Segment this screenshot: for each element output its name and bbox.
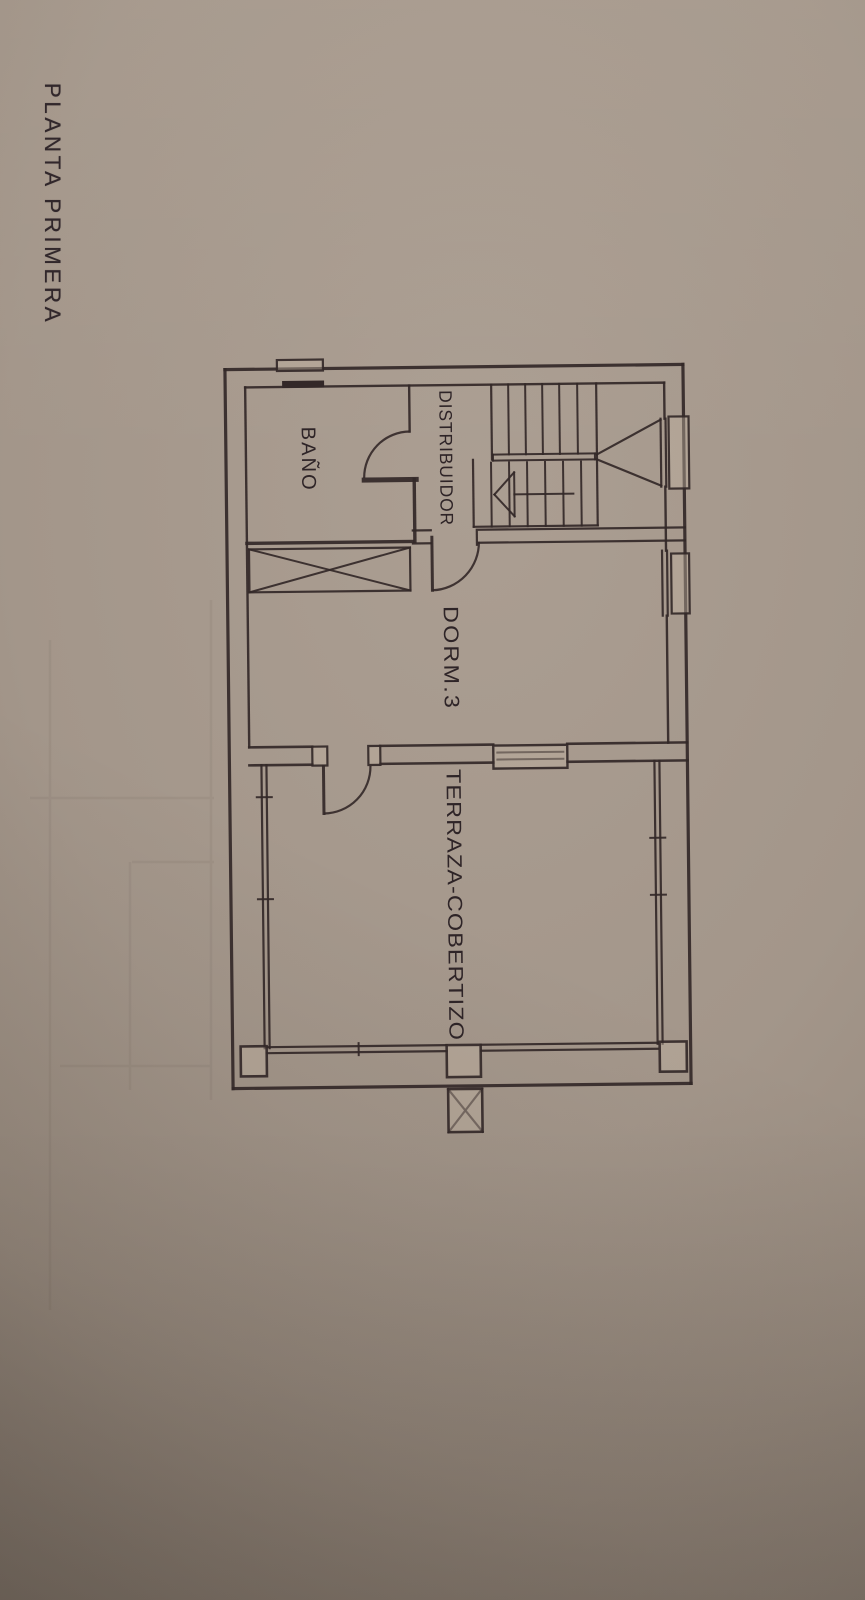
room-label-distribuidor: DISTRIBUIDOR [435, 390, 457, 526]
outer-wall-left [225, 370, 233, 1089]
dorm3-bottom-wall [567, 760, 687, 761]
dorm3-window [667, 551, 668, 616]
dorm3-bottom-wall [380, 763, 493, 764]
terraza-post-right [660, 1041, 687, 1071]
stair-arrow-shaft [514, 494, 573, 495]
terraza-post-center [447, 1045, 481, 1077]
terraza-door-arc [323, 766, 371, 814]
room-label-bano: BAÑO [297, 427, 322, 492]
terraza-wall-left [266, 765, 269, 1048]
dorm3-bottom-wall [567, 742, 687, 743]
terraza-wall-bottom [267, 1045, 447, 1047]
dorm3-bottom-wall [249, 747, 312, 748]
bano-bottom-wall [247, 541, 413, 543]
stair-bottom-wall [479, 527, 685, 529]
terraza-wall-bottom [481, 1049, 658, 1051]
stair-tread [577, 384, 578, 454]
dorm3-door-leaf [432, 537, 433, 590]
stair-left-wall-upper [491, 385, 492, 460]
stair-arrow-head [494, 494, 514, 516]
floor-plan-walls: BAÑODISTRIBUIDORDORM.3TERRAZA-COBERTIZO [225, 355, 697, 1134]
bano-door-stub [364, 479, 416, 480]
bano-right-wall [409, 386, 410, 432]
dorm3-bottom-wall [249, 765, 312, 766]
dorm3-window-sill [671, 553, 690, 613]
room-label-terraza: TERRAZA-COBERTIZO [441, 769, 467, 1041]
terraza-wall-bottom [267, 1051, 447, 1053]
stair-tread [491, 463, 492, 527]
floor-plan-drawing: BAÑODISTRIBUIDORDORM.3TERRAZA-COBERTIZO [0, 0, 865, 1600]
inner-wall-right-c [667, 616, 668, 743]
corridor-left-wall [414, 479, 415, 541]
stair-tread [509, 462, 510, 526]
bano-window-bar [282, 380, 324, 387]
stair-tread [525, 384, 526, 454]
stair-tread [542, 384, 543, 454]
stair-arrow-head [494, 472, 514, 494]
stair-handrail [493, 453, 595, 454]
stair-left-wall-lower [473, 460, 474, 527]
terraza-wall-right [659, 761, 662, 1044]
terraza-door-leaf [323, 767, 324, 814]
paper-bleedthrough [30, 600, 214, 1310]
room-label-dorm3: DORM.3 [439, 606, 463, 710]
stair-landing-splay [597, 459, 661, 487]
top-wall-bump [277, 360, 323, 372]
dorm3-bottom-wall [380, 745, 493, 746]
terraza-door-jamb-right [368, 746, 380, 765]
terraza-wall-right [654, 761, 657, 1044]
stair-window [666, 419, 667, 487]
stair-tread [508, 384, 509, 454]
terraza-wall-left [261, 765, 264, 1048]
stair-handrail [493, 459, 595, 460]
stair-landing-splay [597, 420, 661, 455]
stair-tread [559, 384, 560, 454]
terraza-wall-bottom [481, 1043, 658, 1045]
stair-window-sill [669, 416, 690, 488]
pillar-base [448, 1089, 482, 1132]
stair-tread [581, 462, 582, 526]
dorm3-door-arc [432, 542, 480, 591]
bano-door-arc [364, 432, 411, 479]
stair-window [661, 419, 662, 487]
stair-bottom-wall [479, 540, 685, 542]
terraza-door-jamb-left [312, 746, 327, 765]
scanned-page: PLANTA PRIMERA BAÑODISTRIBUIDORDORM.3TER… [0, 0, 865, 1600]
terraza-window [493, 745, 567, 769]
terraza-post-left [241, 1046, 267, 1076]
dorm3-window [662, 551, 663, 616]
wardrobe-diagonal [249, 548, 410, 593]
